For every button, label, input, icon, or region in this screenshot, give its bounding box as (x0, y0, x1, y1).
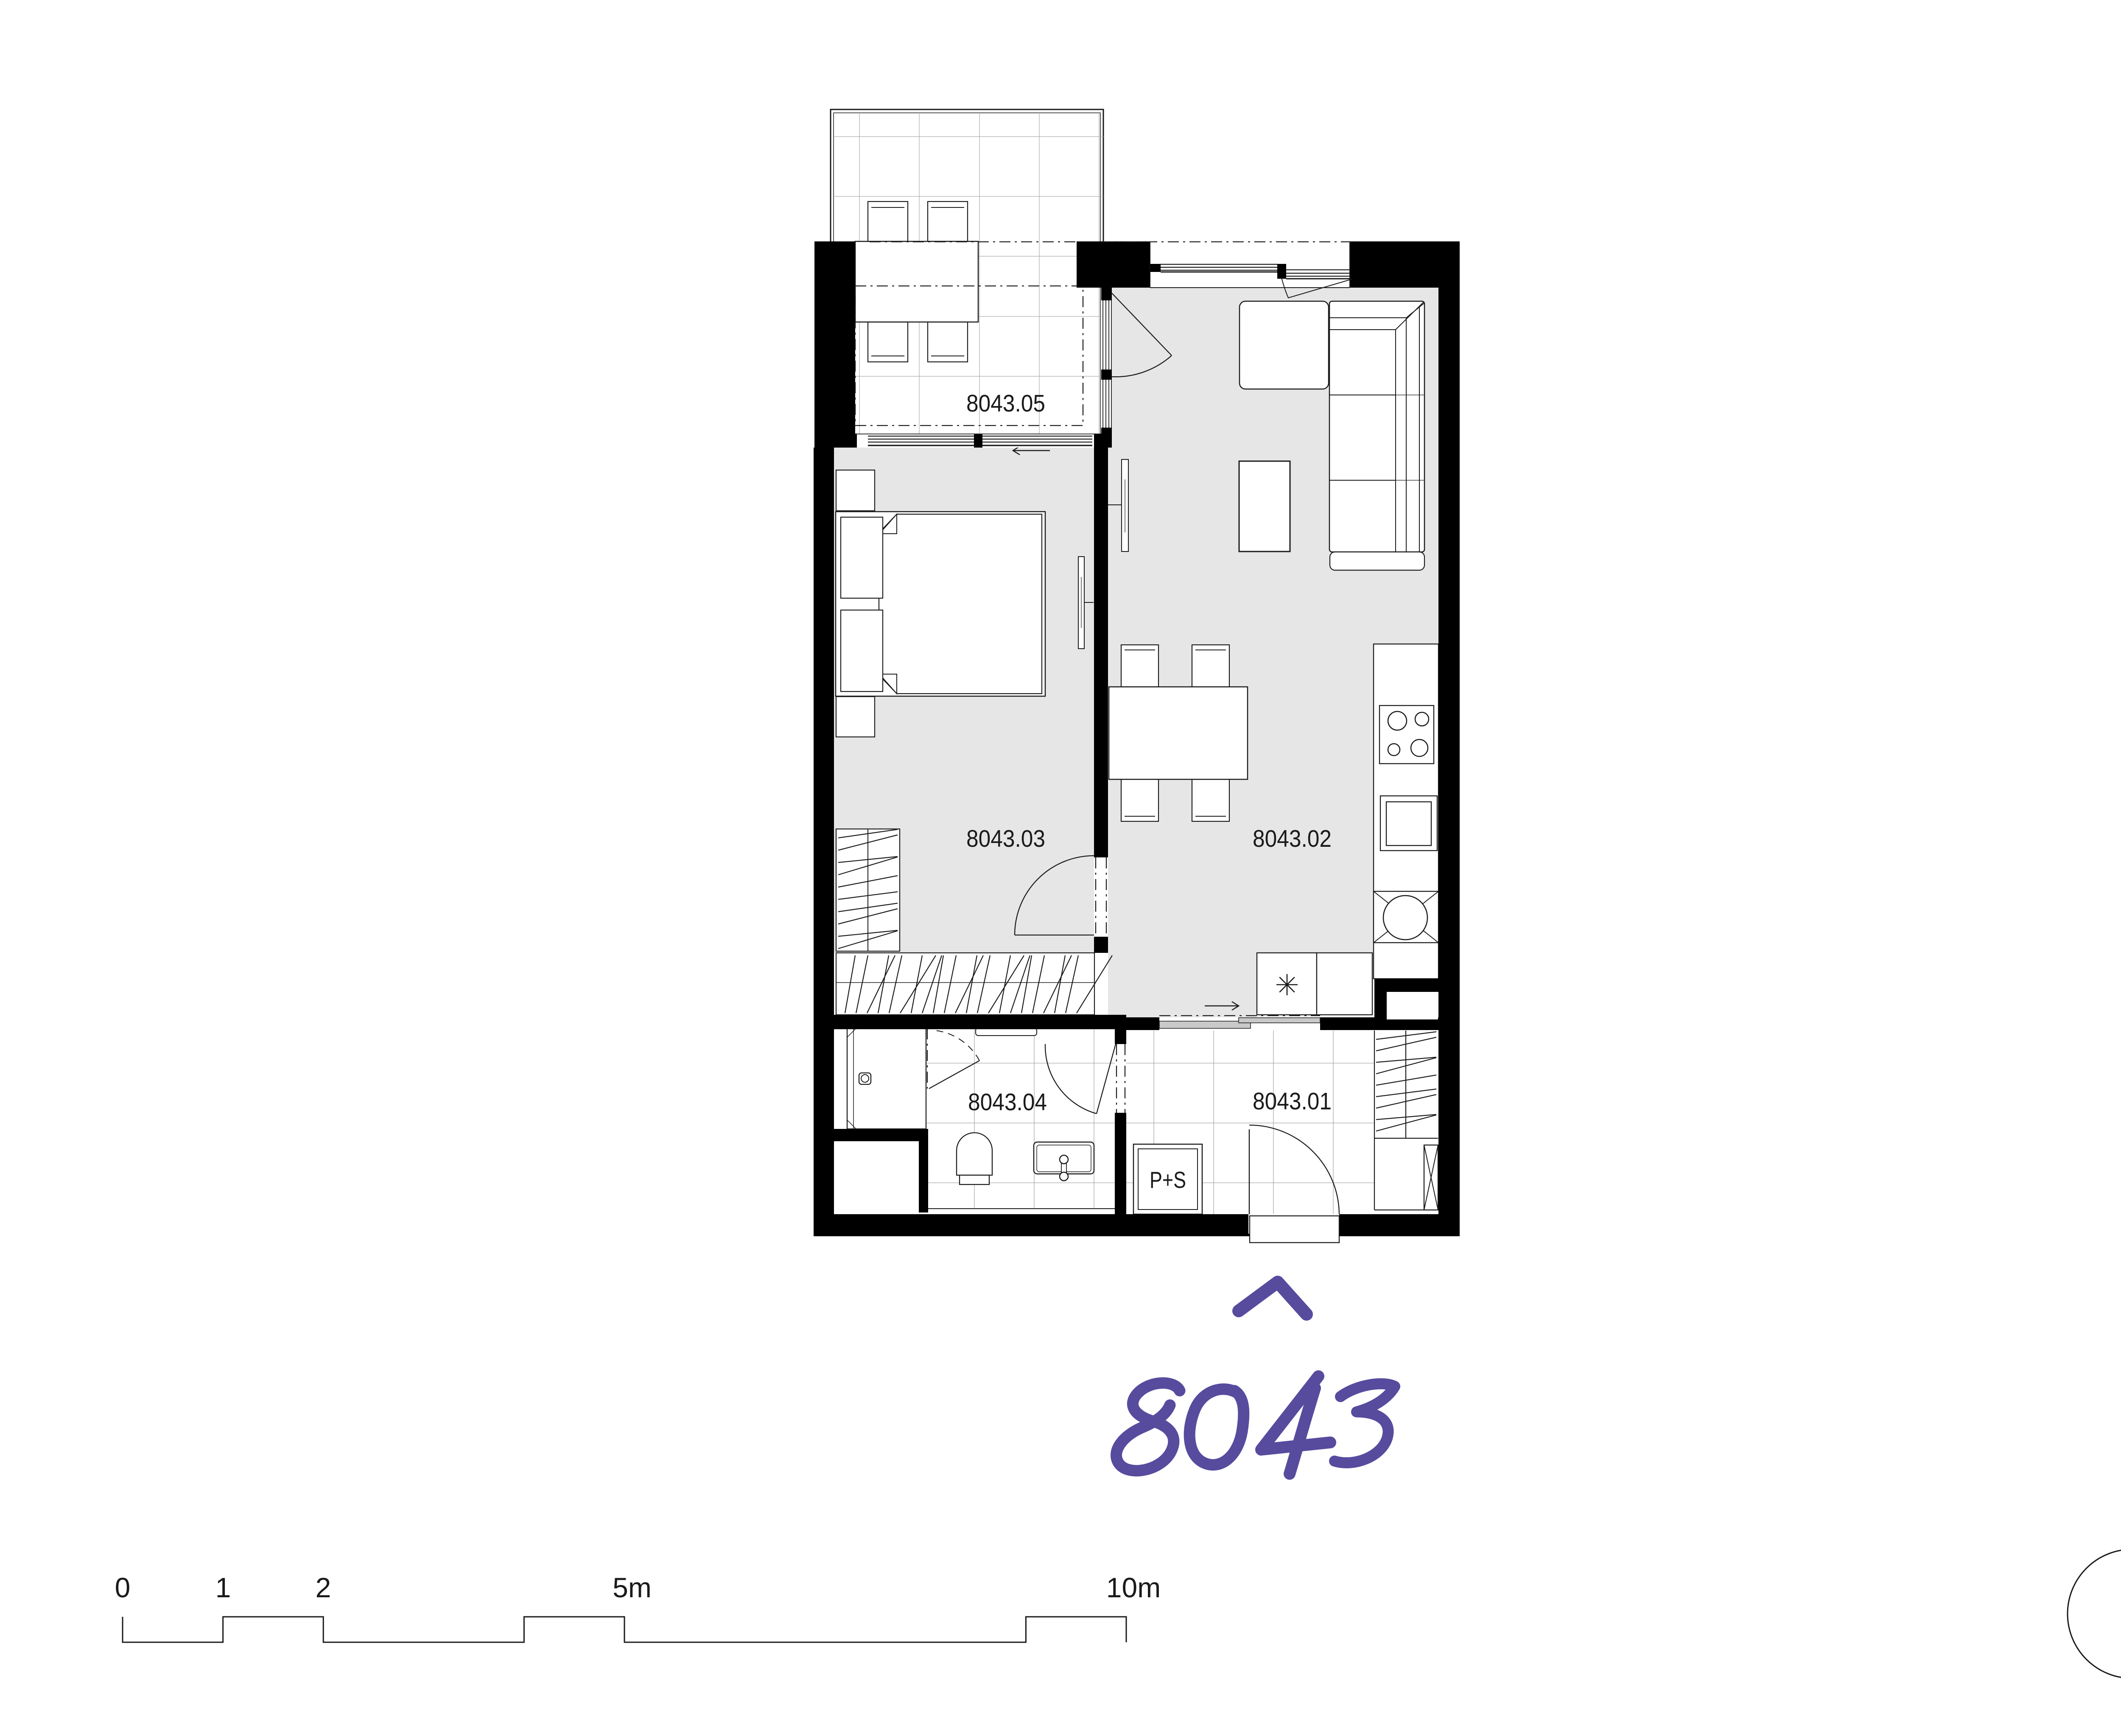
svg-text:10m: 10m (1106, 1572, 1161, 1603)
svg-text:8043.04: 8043.04 (968, 1089, 1047, 1116)
svg-text:1: 1 (215, 1572, 231, 1603)
svg-text:8043.02: 8043.02 (1253, 825, 1332, 852)
svg-text:2: 2 (316, 1572, 331, 1603)
svg-text:8043.01: 8043.01 (1253, 1088, 1332, 1115)
svg-text:0: 0 (115, 1572, 131, 1603)
svg-text:8043.05: 8043.05 (966, 390, 1045, 417)
svg-text:P+S: P+S (1150, 1167, 1186, 1193)
svg-text:8043.03: 8043.03 (966, 825, 1045, 852)
svg-text:5m: 5m (613, 1572, 652, 1603)
